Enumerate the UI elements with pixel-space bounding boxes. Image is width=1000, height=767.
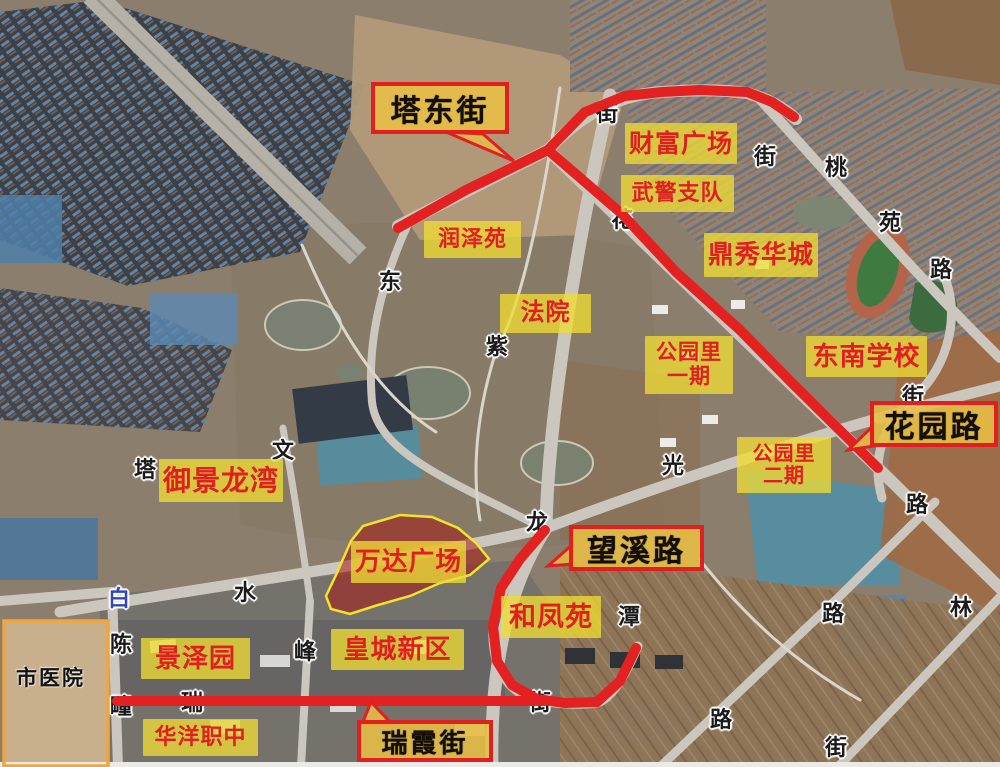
road-callout-wangxi-lu: 望溪路 [569,525,704,571]
hospital-zone-label: 市医院 [16,662,85,692]
road-callout-text: 塔东街 [391,86,490,130]
road-callouts-layer: 塔东街花园路望溪路瑞霞街市医院 [0,0,1000,767]
road-callout-tadong-jie: 塔东街 [371,82,509,134]
satellite-map-canvas[interactable]: 街街桃苑路花紫东光文塔水白龙峰陈疃瑞街潭路林路街街路 财富广场武警支队鼎秀华城润… [0,0,1000,767]
road-callout-ruixia-jie: 瑞霞街 [357,720,493,762]
road-callout-text: 瑞霞街 [381,723,468,760]
road-callout-huayuan-lu: 花园路 [870,401,998,447]
road-callout-text: 望溪路 [587,526,686,570]
road-callout-text: 花园路 [885,402,984,446]
